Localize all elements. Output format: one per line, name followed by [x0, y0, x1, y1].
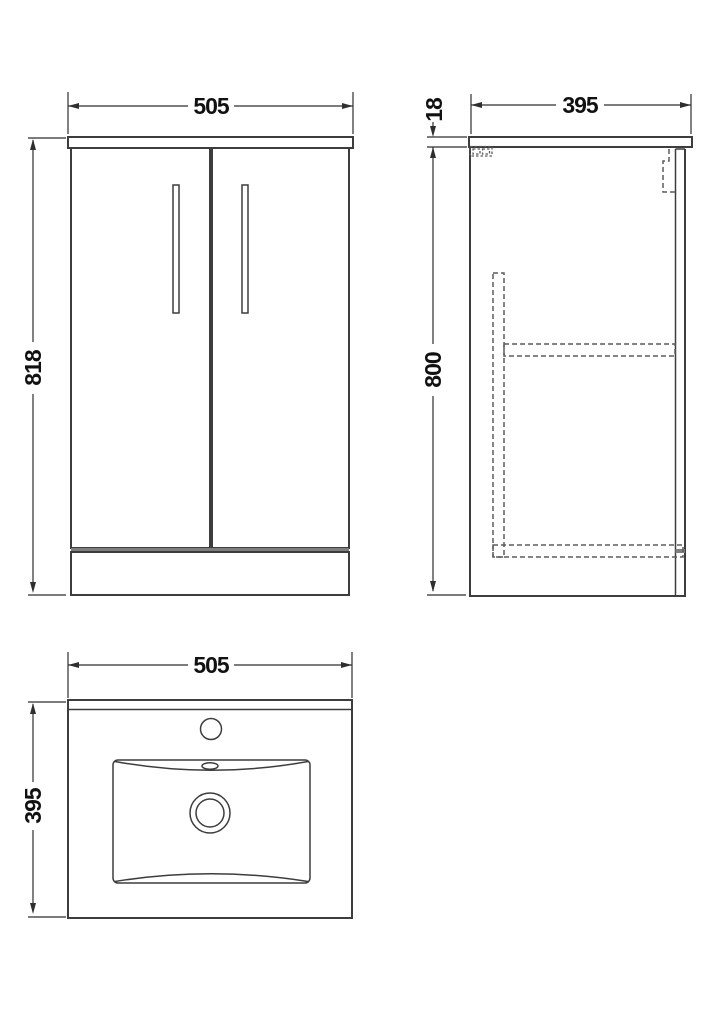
side-hinge-hidden — [663, 149, 675, 192]
side-fixing-screw-right — [483, 149, 490, 154]
front-width-label: 505 — [193, 93, 230, 119]
side-door-inner-edge — [676, 149, 686, 595]
side-body-height-dimension: 800 — [420, 147, 466, 595]
arrow-down — [430, 581, 436, 592]
vanity-dimension-drawing: 505 818 395 — [0, 0, 724, 1024]
side-back-panel-hidden — [493, 273, 504, 557]
side-body-height-label: 800 — [420, 352, 446, 388]
side-top-thickness-dimension: 18 — [421, 97, 467, 158]
plan-depth-label: 395 — [20, 787, 46, 824]
side-depth-dimension: 395 — [471, 92, 691, 134]
side-worktop — [469, 137, 692, 147]
front-width-dimension: 505 — [68, 92, 353, 134]
technical-drawing-canvas: 505 818 395 — [0, 0, 724, 1024]
front-height-dimension: 818 — [20, 138, 66, 595]
arrow-up — [30, 703, 36, 714]
front-view: 505 818 — [20, 92, 353, 595]
side-fixing-screw-left — [473, 149, 480, 154]
front-right-door — [212, 148, 349, 548]
front-left-door-handle — [173, 185, 179, 313]
front-worktop — [68, 137, 353, 148]
front-height-label: 818 — [20, 349, 46, 386]
front-right-door-handle — [242, 185, 248, 313]
arrow-up — [30, 139, 36, 150]
arrow-left — [68, 662, 79, 668]
arrow-right — [680, 102, 691, 108]
arrow-down — [30, 903, 36, 914]
side-view: 395 18 800 — [420, 92, 692, 596]
side-depth-label: 395 — [562, 92, 599, 118]
front-left-door — [71, 148, 210, 548]
front-plinth — [71, 552, 349, 595]
side-bottom-panel-hidden — [493, 545, 683, 557]
arrow-left — [68, 103, 79, 109]
plan-width-dimension: 505 — [68, 652, 352, 698]
arrow-down — [30, 582, 36, 593]
basin-plan-view: 505 395 — [20, 652, 352, 918]
plan-width-label: 505 — [193, 652, 230, 678]
arrow-right — [341, 662, 352, 668]
arrow-left — [471, 102, 482, 108]
arrow-down — [430, 126, 436, 137]
side-shelf-hidden — [504, 344, 675, 356]
plan-depth-dimension: 395 — [20, 702, 66, 917]
side-carcass-outline — [469, 147, 686, 596]
arrow-right — [342, 103, 353, 109]
side-top-thickness-label: 18 — [421, 97, 447, 122]
